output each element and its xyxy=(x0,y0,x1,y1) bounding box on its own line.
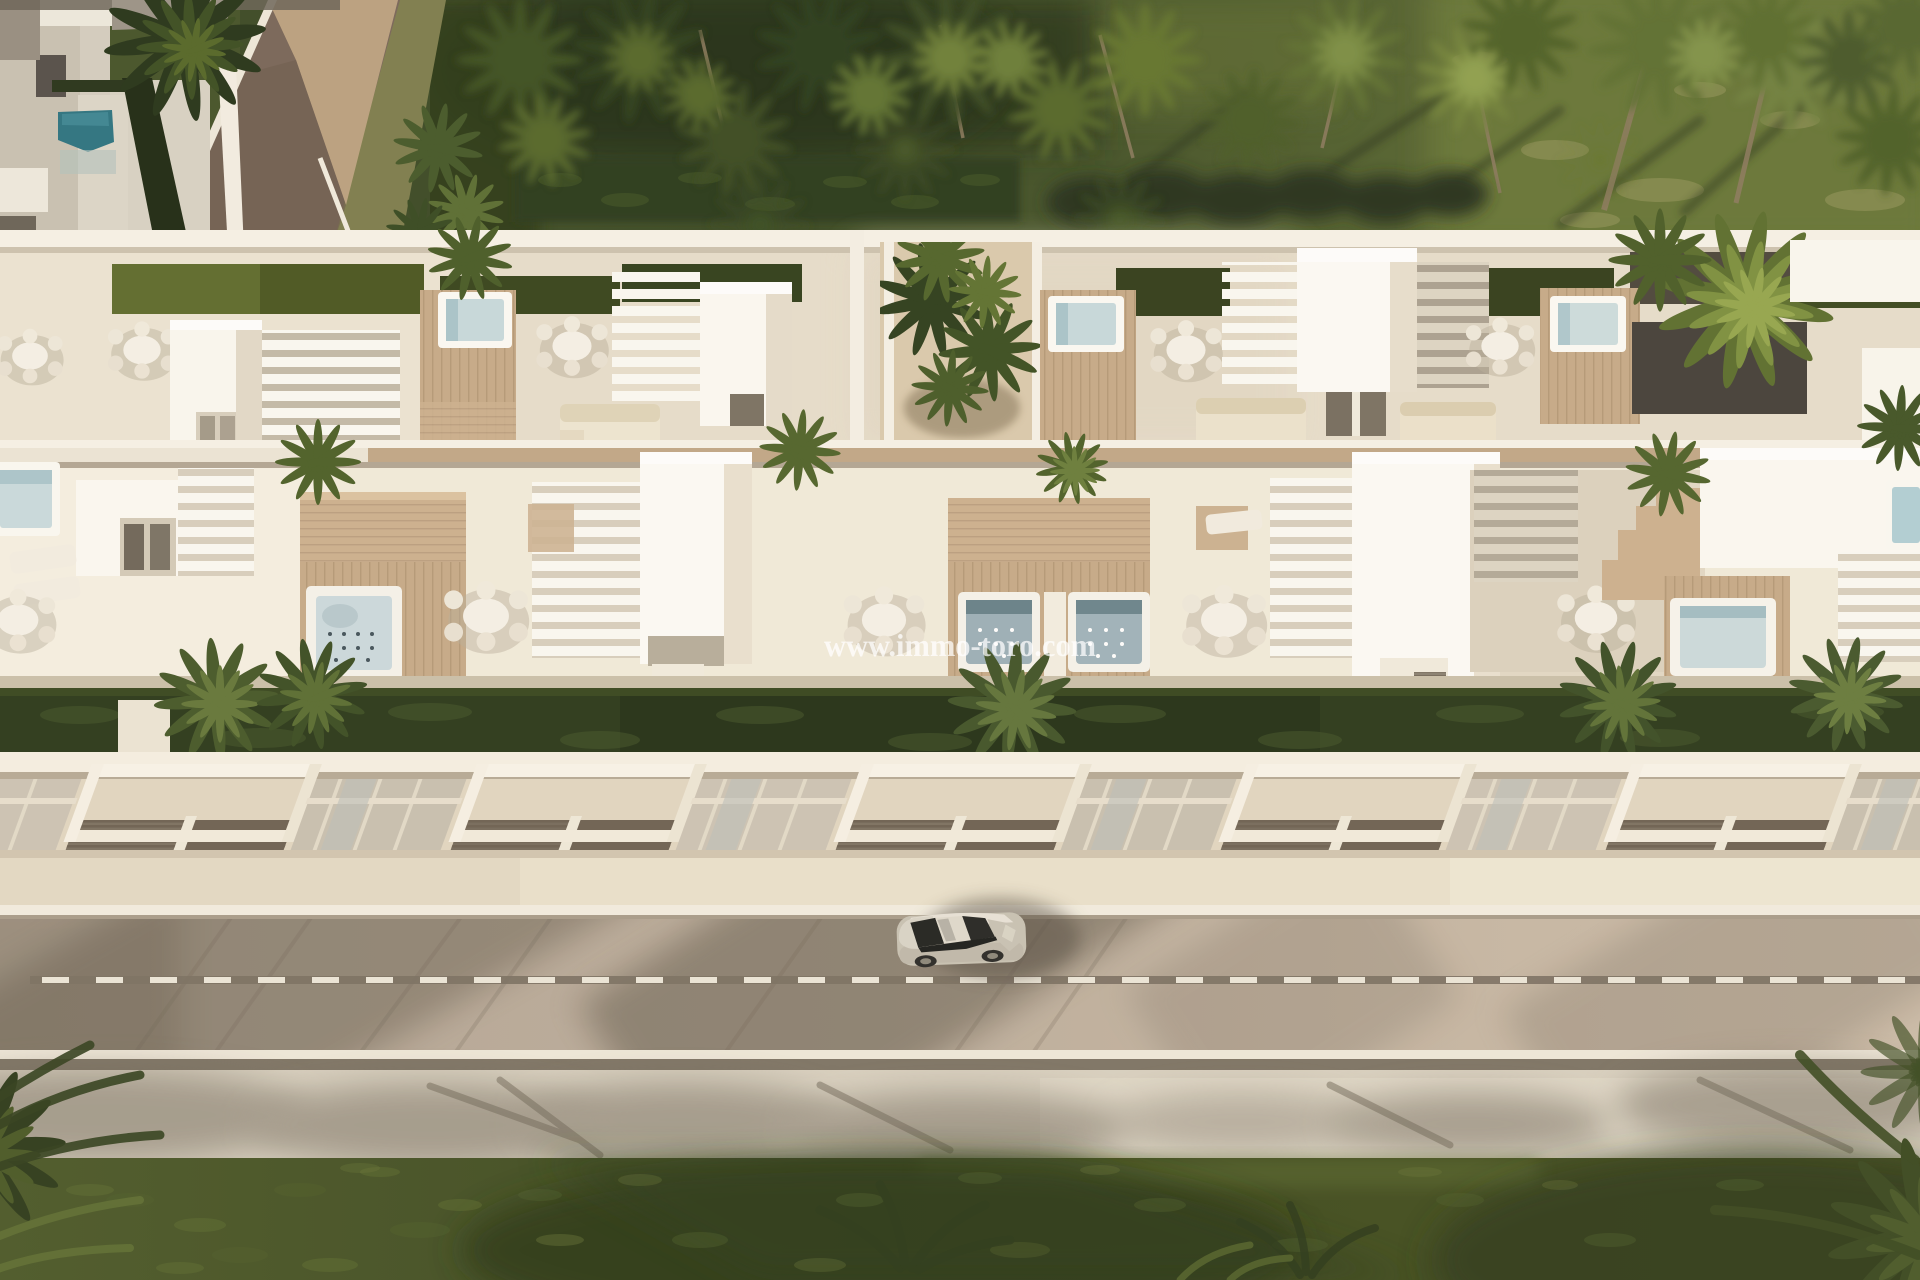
svg-text:www.immo-toro.com: www.immo-toro.com xyxy=(824,627,1096,663)
